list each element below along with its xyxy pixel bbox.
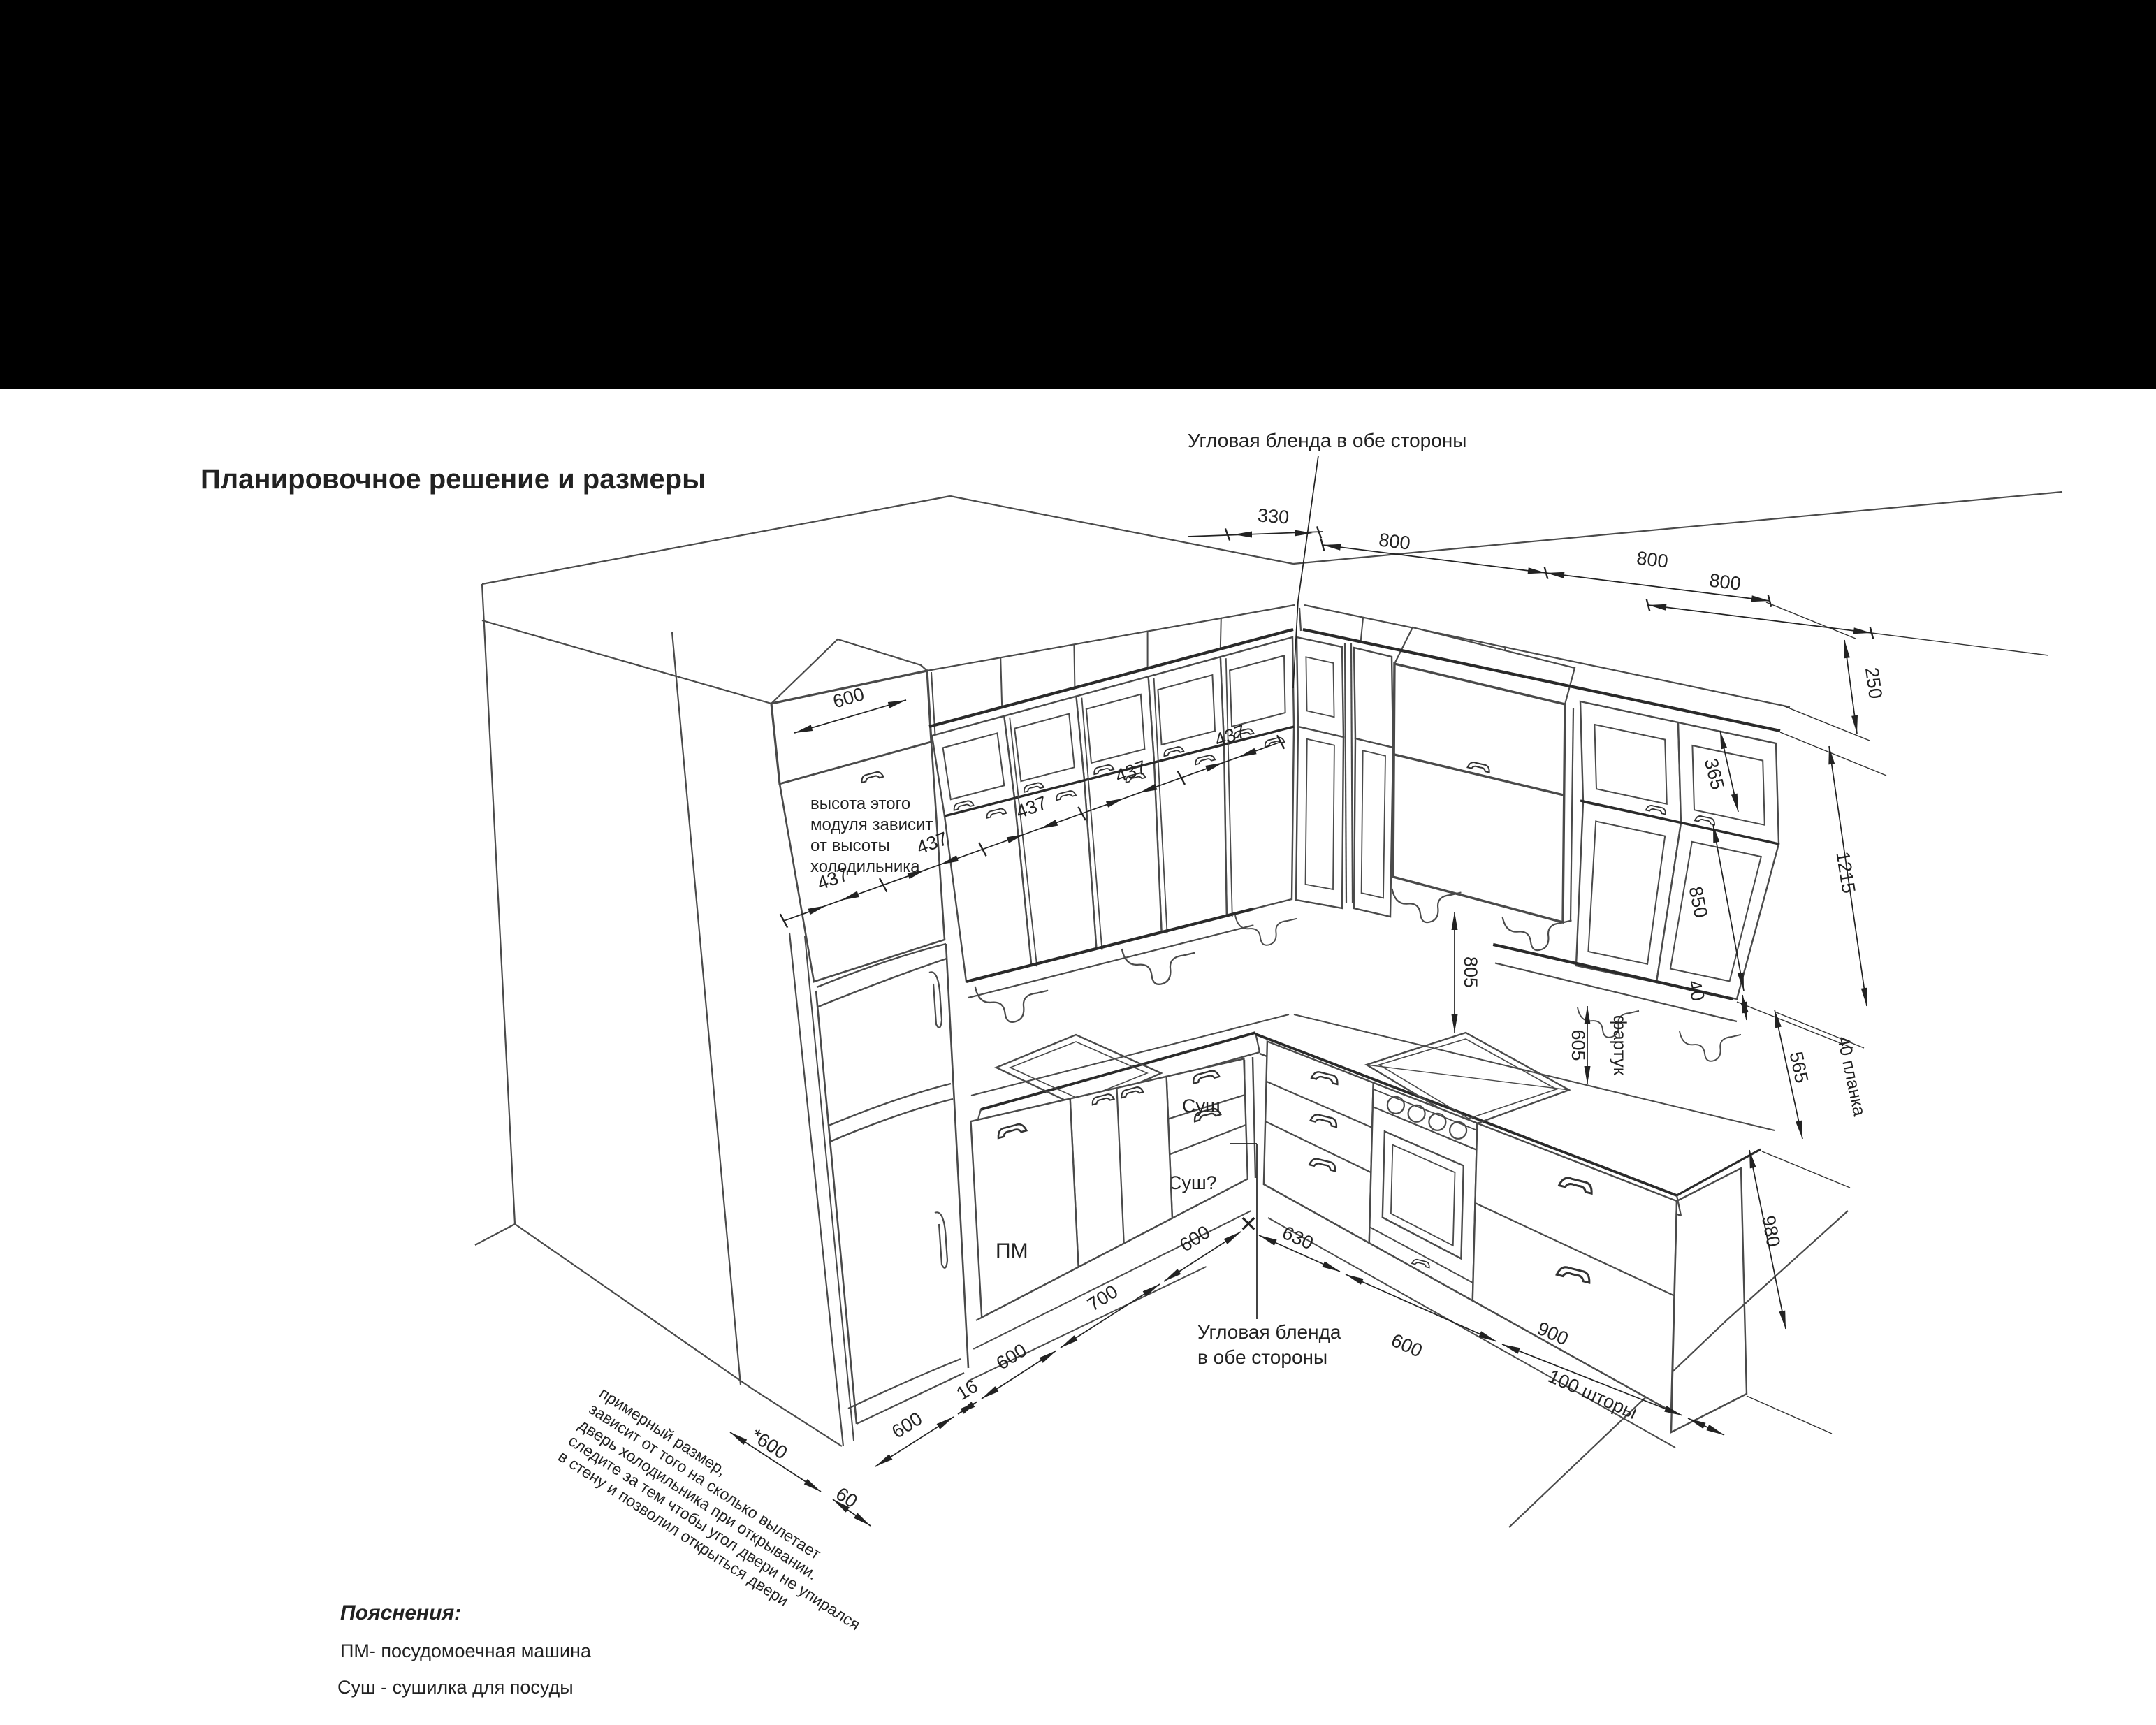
svg-text:Угловая бленда: Угловая бленда: [1197, 1321, 1341, 1343]
svg-text:фартук: фартук: [1610, 1015, 1631, 1076]
svg-text:Планировочное решение и размер: Планировочное решение и размеры: [201, 464, 706, 495]
svg-text:16: 16: [953, 1376, 982, 1404]
svg-text:в обе стороны: в обе стороны: [1197, 1346, 1327, 1368]
svg-text:модуля зависит: модуля зависит: [810, 815, 933, 834]
svg-text:1215: 1215: [1832, 850, 1859, 895]
svg-text:600: 600: [888, 1408, 926, 1442]
svg-text:от высоты: от высоты: [810, 836, 890, 855]
svg-text:Суш?: Суш?: [1168, 1172, 1217, 1193]
svg-text:Суш: Суш: [1182, 1096, 1221, 1116]
svg-text:Угловая бленда в обе стороны: Угловая бленда в обе стороны: [1188, 430, 1466, 451]
svg-text:800: 800: [1708, 569, 1742, 594]
svg-text:330: 330: [1257, 504, 1290, 527]
svg-text:ПМ: ПМ: [996, 1239, 1028, 1262]
svg-text:605: 605: [1568, 1029, 1589, 1061]
svg-text:✕: ✕: [1239, 1211, 1258, 1237]
svg-text:40 планка: 40 планка: [1833, 1035, 1870, 1118]
svg-text:высота этого: высота этого: [810, 794, 910, 813]
svg-text:Суш - сушилка для посуды: Суш - сушилка для посуды: [337, 1677, 574, 1698]
svg-text:40: 40: [1684, 978, 1709, 1003]
svg-text:600: 600: [1388, 1330, 1425, 1362]
svg-text:Пояснения:: Пояснения:: [340, 1601, 461, 1624]
svg-text:холодильника: холодильника: [810, 857, 920, 876]
svg-text:980: 980: [1758, 1214, 1784, 1249]
svg-text:ПМ- посудомоечная машина: ПМ- посудомоечная машина: [340, 1640, 592, 1661]
svg-text:800: 800: [1636, 547, 1669, 572]
svg-text:600: 600: [1176, 1221, 1214, 1255]
svg-text:805: 805: [1460, 956, 1481, 988]
svg-text:800: 800: [1378, 529, 1411, 553]
svg-text:600: 600: [993, 1339, 1030, 1374]
svg-text:60: 60: [832, 1483, 861, 1513]
svg-text:250: 250: [1861, 666, 1886, 700]
